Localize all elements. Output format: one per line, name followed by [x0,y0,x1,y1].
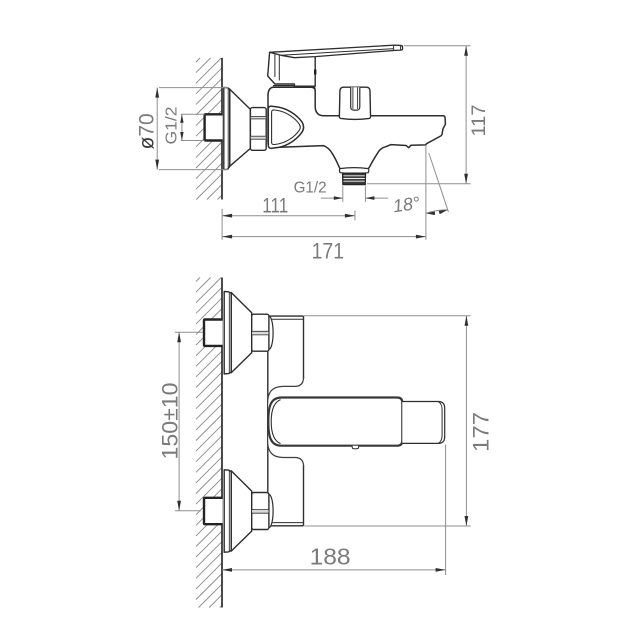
svg-text:ø70: ø70 [136,113,159,149]
svg-text:188: 188 [310,544,351,570]
svg-text:171: 171 [312,239,345,264]
svg-text:117: 117 [468,105,490,137]
svg-text:150±10: 150±10 [157,383,182,460]
svg-text:G1/2: G1/2 [294,180,327,197]
svg-text:111: 111 [262,195,288,218]
svg-text:18°: 18° [392,193,422,217]
svg-text:177: 177 [469,412,494,452]
svg-text:G1/2: G1/2 [163,106,180,144]
